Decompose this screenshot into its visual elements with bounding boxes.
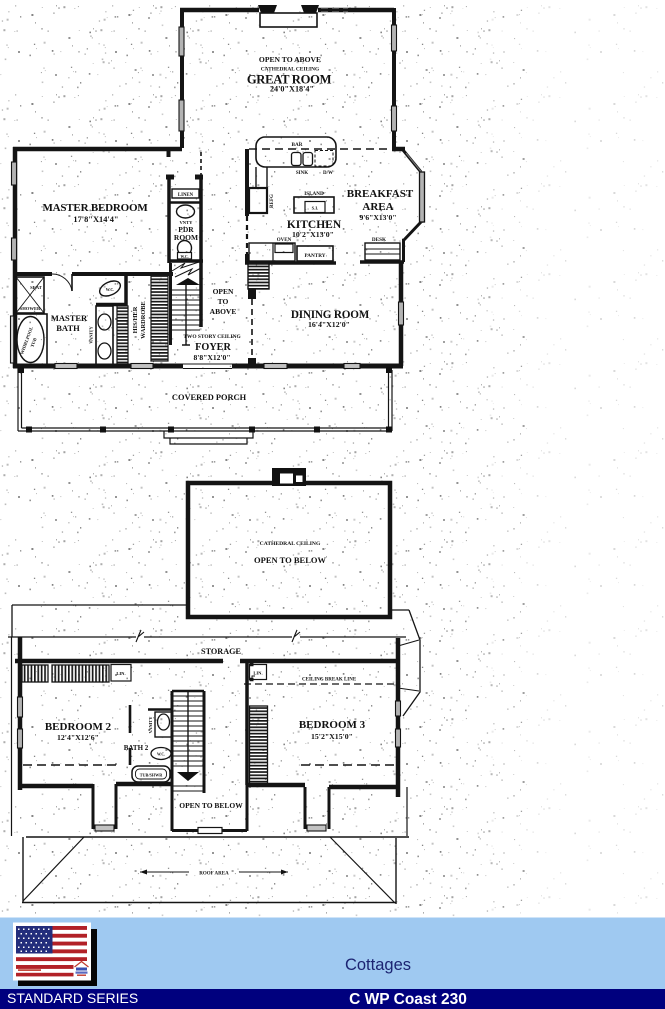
svg-text:REFG: REFG bbox=[270, 194, 275, 208]
svg-text:ABOVE: ABOVE bbox=[210, 307, 237, 316]
svg-text:LIN.: LIN. bbox=[253, 671, 262, 676]
svg-text:WARDROBE: WARDROBE bbox=[140, 301, 147, 339]
svg-text:S.I.: S.I. bbox=[312, 206, 319, 211]
svg-text:SINK: SINK bbox=[296, 171, 308, 176]
svg-text:HIS/HER: HIS/HER bbox=[132, 306, 139, 333]
svg-text:MASTER BEDROOM: MASTER BEDROOM bbox=[42, 202, 148, 214]
svg-text:24'0"X18'4": 24'0"X18'4" bbox=[270, 85, 314, 94]
svg-text:LIN.: LIN. bbox=[116, 671, 125, 676]
svg-text:D/W: D/W bbox=[323, 171, 333, 176]
svg-text:OPEN TO BELOW: OPEN TO BELOW bbox=[179, 801, 243, 810]
svg-text:Cottages: Cottages bbox=[345, 956, 411, 974]
svg-text:TWO STORY CEILING: TWO STORY CEILING bbox=[183, 334, 241, 340]
svg-text:16'4"X12'0": 16'4"X12'0" bbox=[308, 320, 350, 329]
svg-text:BEDROOM 3: BEDROOM 3 bbox=[299, 719, 366, 731]
svg-text:15'2"X15'0": 15'2"X15'0" bbox=[311, 732, 353, 741]
svg-text:BEDROOM 2: BEDROOM 2 bbox=[45, 721, 112, 733]
svg-text:FOYER: FOYER bbox=[195, 342, 231, 353]
svg-text:W.C.: W.C. bbox=[106, 287, 115, 292]
svg-text:TO: TO bbox=[218, 297, 229, 306]
svg-text:9'6"X13'0": 9'6"X13'0" bbox=[359, 213, 396, 222]
svg-text:BATH: BATH bbox=[56, 323, 80, 333]
svg-text:CATHEDRAL CEILING: CATHEDRAL CEILING bbox=[260, 541, 321, 547]
svg-text:STORAGE: STORAGE bbox=[201, 647, 241, 656]
svg-text:12'4"X12'6": 12'4"X12'6" bbox=[57, 733, 99, 742]
svg-text:VANITY: VANITY bbox=[89, 326, 94, 344]
svg-text:LINEN: LINEN bbox=[178, 193, 194, 198]
svg-text:W.C.: W.C. bbox=[157, 753, 165, 757]
svg-text:PANTRY: PANTRY bbox=[304, 253, 325, 259]
svg-text:8'8"X12'0": 8'8"X12'0" bbox=[193, 353, 230, 362]
svg-text:SEAT: SEAT bbox=[30, 285, 42, 290]
svg-text:BREAKFAST: BREAKFAST bbox=[347, 188, 414, 200]
svg-text:W.C.: W.C. bbox=[180, 255, 188, 259]
svg-text:C WP Coast 230: C WP Coast 230 bbox=[349, 991, 467, 1008]
svg-text:OVEN: OVEN bbox=[277, 238, 292, 243]
svg-text:DESK: DESK bbox=[372, 237, 386, 243]
svg-text:17'8"X14'4": 17'8"X14'4" bbox=[73, 215, 118, 224]
svg-text:SHOWER: SHOWER bbox=[20, 306, 41, 311]
svg-text:OPEN TO BELOW: OPEN TO BELOW bbox=[254, 555, 326, 565]
svg-text:MASTER: MASTER bbox=[51, 313, 88, 323]
svg-text:OPEN: OPEN bbox=[213, 287, 234, 296]
svg-text:COVERED PORCH: COVERED PORCH bbox=[172, 393, 247, 402]
svg-text:STANDARD SERIES: STANDARD SERIES bbox=[7, 990, 138, 1006]
svg-text:ROOF AREA: ROOF AREA bbox=[199, 872, 229, 877]
svg-text:BATH 2: BATH 2 bbox=[124, 744, 149, 752]
svg-text:BAR: BAR bbox=[292, 142, 303, 148]
svg-text:AREA: AREA bbox=[362, 201, 393, 213]
svg-text:CEILING BREAK LINE: CEILING BREAK LINE bbox=[302, 678, 357, 683]
svg-text:10'2"X13'0": 10'2"X13'0" bbox=[292, 230, 334, 239]
svg-text:OPEN TO ABOVE: OPEN TO ABOVE bbox=[259, 55, 321, 64]
svg-text:TUB/SHWR: TUB/SHWR bbox=[140, 773, 164, 778]
svg-text:VANITY: VANITY bbox=[148, 716, 153, 734]
svg-text:ISLAND: ISLAND bbox=[304, 191, 324, 197]
